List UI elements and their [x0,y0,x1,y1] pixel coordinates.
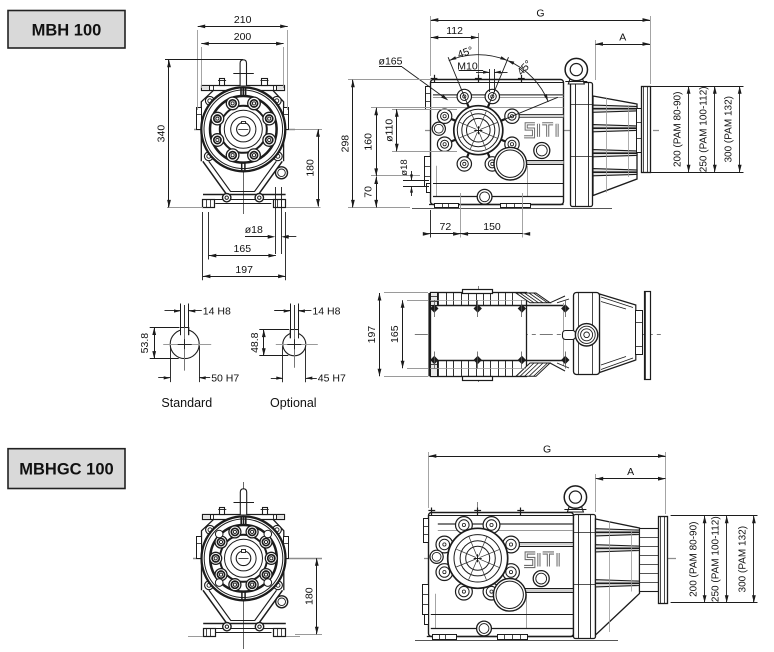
svg-text:53.8: 53.8 [139,333,151,354]
svg-text:ø110: ø110 [383,119,395,142]
svg-text:ø165: ø165 [379,56,403,68]
svg-text:A: A [619,32,626,44]
svg-text:72: 72 [440,221,452,233]
svg-text:210: 210 [234,14,252,26]
svg-text:298: 298 [339,135,351,153]
svg-text:197: 197 [235,264,253,276]
svg-text:G: G [543,444,551,456]
svg-text:Standard: Standard [161,396,212,410]
svg-text:165: 165 [389,325,401,343]
svg-text:340: 340 [156,125,168,143]
svg-text:250 (PAM 100-112): 250 (PAM 100-112) [699,86,710,172]
svg-text:160: 160 [363,133,375,151]
svg-text:165: 165 [234,243,252,255]
svg-text:MBHGC 100: MBHGC 100 [19,461,113,479]
svg-text:G: G [536,8,544,20]
svg-text:300 (PAM 132): 300 (PAM 132) [738,526,749,593]
svg-text:14 H8: 14 H8 [312,306,340,318]
svg-text:180: 180 [305,159,317,177]
svg-text:A: A [627,466,634,478]
svg-text:ø18: ø18 [245,224,263,236]
svg-text:50 H7: 50 H7 [211,372,239,384]
svg-text:45 H7: 45 H7 [318,373,346,385]
svg-text:ø18: ø18 [399,159,410,175]
svg-text:200 (PAM 80-90): 200 (PAM 80-90) [672,92,683,167]
svg-text:197: 197 [366,326,378,344]
svg-text:70: 70 [363,186,375,198]
svg-text:48.8: 48.8 [249,332,261,353]
svg-text:150: 150 [483,221,501,233]
svg-text:180: 180 [303,587,315,605]
svg-text:200 (PAM 80-90): 200 (PAM 80-90) [688,521,699,596]
svg-text:Optional: Optional [270,396,317,410]
svg-text:250 (PAM 100-112): 250 (PAM 100-112) [710,516,721,602]
svg-text:200: 200 [234,31,252,43]
svg-text:14 H8: 14 H8 [203,306,231,318]
svg-text:MBH 100: MBH 100 [32,22,102,40]
svg-text:112: 112 [446,25,463,37]
svg-text:300 (PAM 132): 300 (PAM 132) [723,96,734,163]
